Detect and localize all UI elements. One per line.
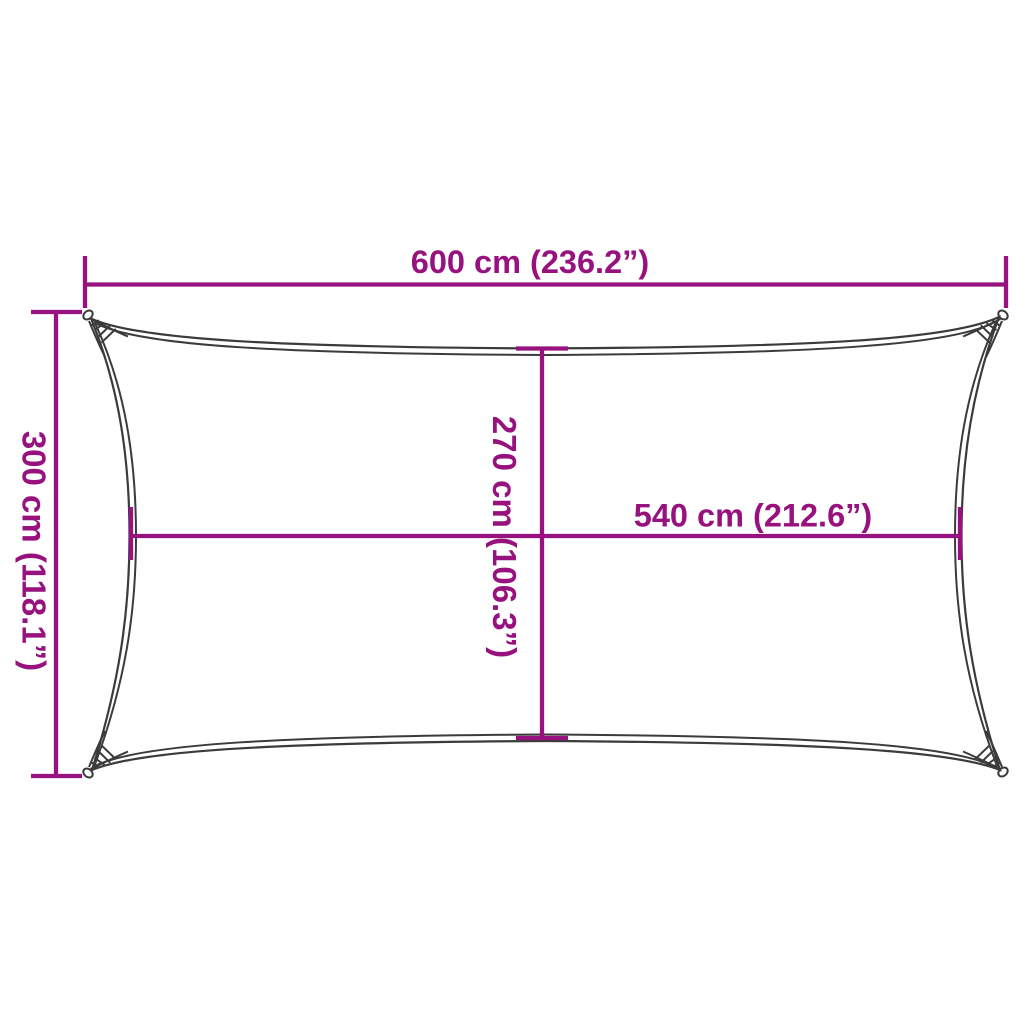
svg-text:540 cm (212.6”): 540 cm (212.6”): [634, 498, 872, 534]
svg-text:600 cm (236.2”): 600 cm (236.2”): [411, 244, 649, 280]
svg-text:300 cm (118.1”): 300 cm (118.1”): [15, 431, 52, 671]
